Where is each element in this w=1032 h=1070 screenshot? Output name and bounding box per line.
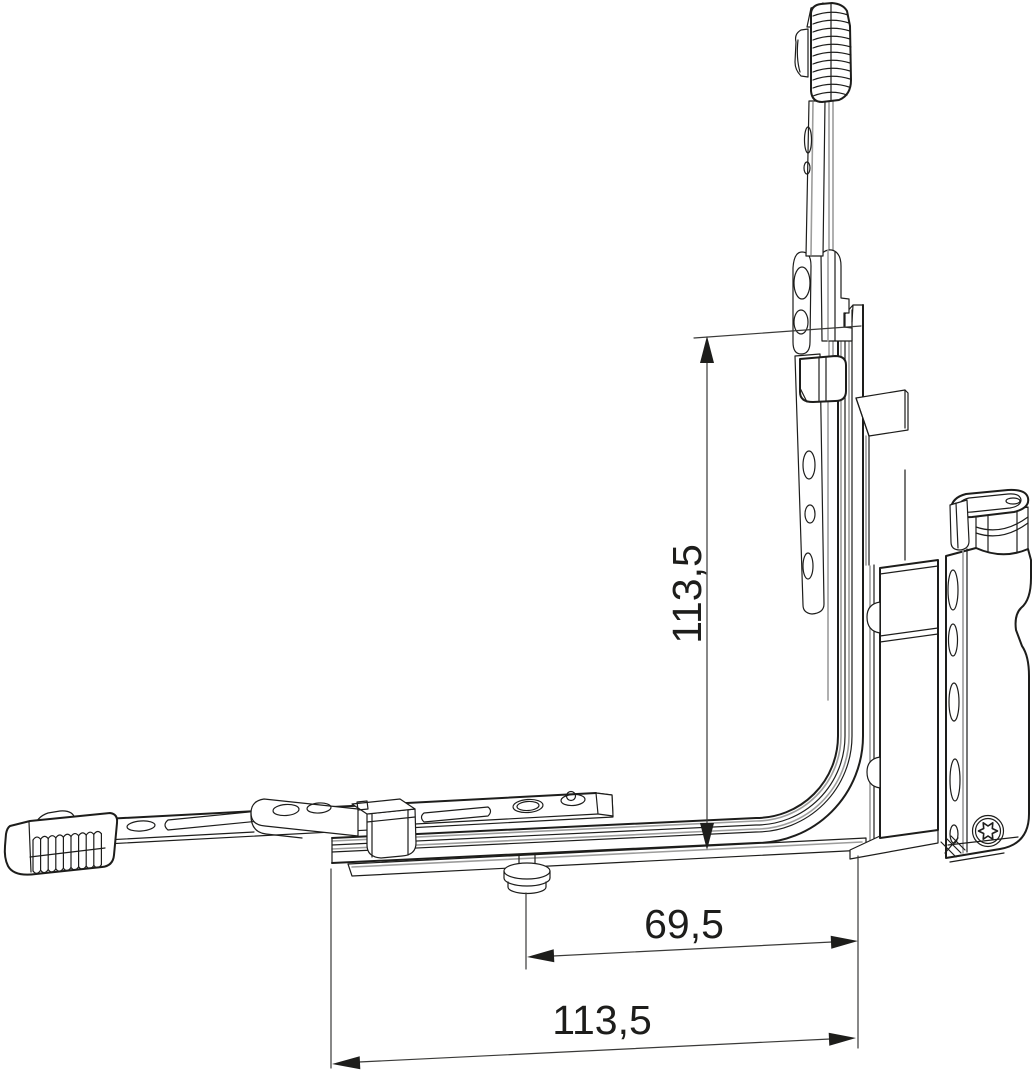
corner-hinge-technical-drawing: 113,5 69,5 113,5 bbox=[0, 0, 1032, 1070]
dim-vertical-label: 113,5 bbox=[664, 544, 710, 644]
drawing-canvas: 113,5 69,5 113,5 bbox=[0, 0, 1032, 1070]
corner-drive-faceplate bbox=[332, 305, 863, 863]
hook-cam-bracket bbox=[800, 356, 846, 402]
dim-horizontal-outer-label: 113,5 bbox=[552, 997, 652, 1043]
serrated-end-piece-left bbox=[5, 811, 117, 875]
dim-horizontal-inner-label: 69,5 bbox=[644, 901, 724, 947]
faceplate-front-lip bbox=[348, 838, 866, 876]
dim-horizontal-outer: 113,5 bbox=[331, 869, 856, 1069]
dimensions: 113,5 69,5 113,5 bbox=[331, 326, 861, 1069]
serrated-end-piece-top bbox=[811, 3, 851, 102]
frame-hinge-body bbox=[941, 490, 1031, 862]
tilt-arm-shaft bbox=[806, 101, 825, 256]
dim-vertical: 113,5 bbox=[664, 326, 861, 850]
